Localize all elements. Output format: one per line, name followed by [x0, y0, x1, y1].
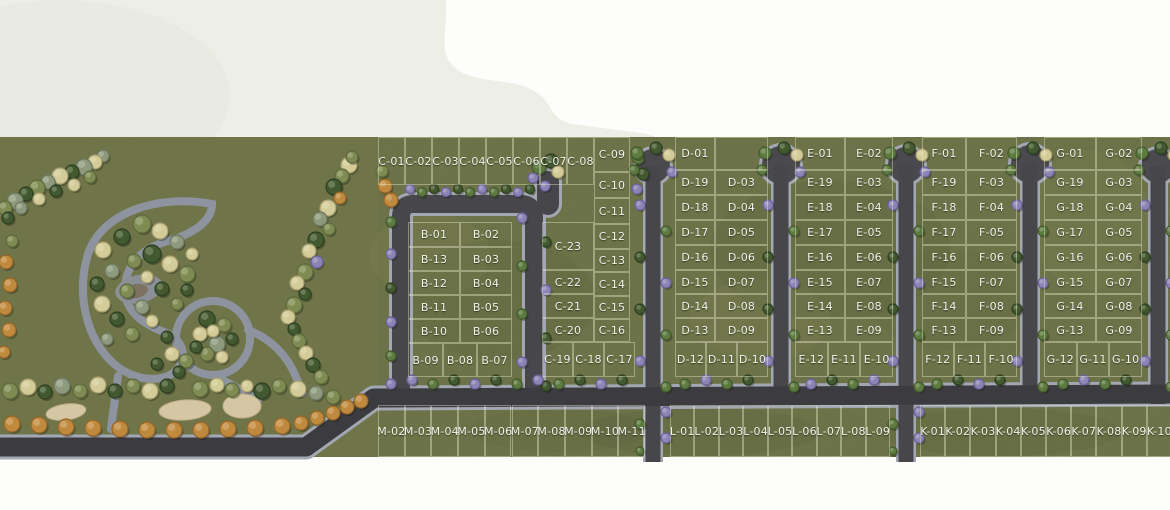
- lot-k-02[interactable]: K-02: [945, 405, 970, 457]
- lot-f-11[interactable]: F-11: [954, 342, 986, 377]
- lot-c-09[interactable]: C-09: [594, 137, 630, 172]
- lot-c-16[interactable]: C-16: [594, 319, 630, 342]
- lot-d-16[interactable]: D-16: [675, 245, 715, 270]
- lot-d-15[interactable]: D-15: [675, 270, 715, 294]
- lot-c-14[interactable]: C-14: [594, 272, 630, 296]
- lot-c-01[interactable]: C-01: [378, 137, 405, 185]
- lot-b-12[interactable]: B-12: [408, 271, 460, 295]
- lot-f-09[interactable]: F-09: [966, 318, 1017, 342]
- lot-c-11[interactable]: C-11: [594, 198, 630, 224]
- lot-g-06[interactable]: G-06: [1096, 245, 1142, 270]
- lot-m-04[interactable]: M-04: [431, 405, 458, 457]
- lot-g-10[interactable]: G-10: [1109, 342, 1142, 377]
- lot-c-04[interactable]: C-04: [459, 137, 486, 185]
- lot-g-02[interactable]: G-02: [1096, 137, 1142, 170]
- lot-l-07[interactable]: L-07: [817, 405, 841, 457]
- lot-b-03[interactable]: B-03: [460, 247, 512, 271]
- lot-c-22[interactable]: C-22: [542, 270, 594, 294]
- lot-g-04[interactable]: G-04: [1096, 195, 1142, 220]
- lot-b-07[interactable]: B-07: [477, 343, 512, 377]
- lot-e-02[interactable]: E-02: [845, 137, 893, 170]
- lot-e-06[interactable]: E-06: [845, 245, 893, 270]
- lot-d-08[interactable]: D-08: [715, 294, 768, 318]
- lot-c-05[interactable]: C-05: [486, 137, 513, 185]
- lot-m-02[interactable]: M-02: [378, 405, 405, 457]
- lot-f-08[interactable]: F-08: [966, 294, 1017, 318]
- lot-l-04[interactable]: L-04: [743, 405, 767, 457]
- lot-f-12[interactable]: F-12: [922, 342, 954, 377]
- lot-g-07[interactable]: G-07: [1096, 270, 1142, 294]
- lot-c-08[interactable]: C-08: [567, 137, 594, 185]
- lot-f-05[interactable]: F-05: [966, 220, 1017, 245]
- lot-e-07[interactable]: E-07: [845, 270, 893, 294]
- lot-d-07[interactable]: D-07: [715, 270, 768, 294]
- lot-k-08[interactable]: K-08: [1096, 405, 1121, 457]
- lot-f-02[interactable]: F-02: [966, 137, 1017, 170]
- lot-c-19[interactable]: C-19: [542, 342, 573, 377]
- lot-l-08[interactable]: L-08: [841, 405, 865, 457]
- lot-c-02[interactable]: C-02: [405, 137, 432, 185]
- lot-g-12[interactable]: G-12: [1044, 342, 1077, 377]
- lot-d-13[interactable]: D-13: [675, 318, 715, 342]
- lots-layer: C-01C-02C-03C-04C-05C-06C-07C-08C-09C-10…: [0, 0, 1170, 510]
- lot-k-06[interactable]: K-06: [1046, 405, 1071, 457]
- lot-l-01[interactable]: L-01: [670, 405, 694, 457]
- lot-k-03[interactable]: K-03: [970, 405, 995, 457]
- lot-e-14[interactable]: E-14: [795, 294, 845, 318]
- lot-c-07[interactable]: C-07: [540, 137, 567, 185]
- lot-k-01[interactable]: K-01: [920, 405, 945, 457]
- lot-c-12[interactable]: C-12: [594, 224, 630, 249]
- lot-m-10[interactable]: M-10: [592, 405, 619, 457]
- lot-e-19[interactable]: E-19: [795, 170, 845, 195]
- lot-d-05[interactable]: D-05: [715, 220, 768, 245]
- lot-e-17[interactable]: E-17: [795, 220, 845, 245]
- lot-k-05[interactable]: K-05: [1021, 405, 1046, 457]
- lot-m-06[interactable]: M-06: [485, 405, 512, 457]
- lot-b-01[interactable]: B-01: [408, 222, 460, 247]
- lot-l-05[interactable]: L-05: [768, 405, 792, 457]
- lot-d-14[interactable]: D-14: [675, 294, 715, 318]
- lot-f-17[interactable]: F-17: [922, 220, 966, 245]
- lot-f-19[interactable]: F-19: [922, 170, 966, 195]
- lot-c-03[interactable]: C-03: [432, 137, 459, 185]
- lot-d-03[interactable]: D-03: [715, 170, 768, 195]
- lot-d-09[interactable]: D-09: [715, 318, 768, 342]
- lot-g-19[interactable]: G-19: [1044, 170, 1096, 195]
- lot-k-10[interactable]: K-10: [1147, 405, 1170, 457]
- lot-b-13[interactable]: B-13: [408, 247, 460, 271]
- lot-g-01[interactable]: G-01: [1044, 137, 1096, 170]
- lot-f-07[interactable]: F-07: [966, 270, 1017, 294]
- lot-g-09[interactable]: G-09: [1096, 318, 1142, 342]
- lot-d-12[interactable]: D-12: [675, 342, 706, 377]
- lot-e-10[interactable]: E-10: [860, 342, 893, 377]
- lot-d-01[interactable]: D-01: [675, 137, 715, 170]
- lot-e-13[interactable]: E-13: [795, 318, 845, 342]
- lot-g-14[interactable]: G-14: [1044, 294, 1096, 318]
- lot-unlabeled[interactable]: [715, 137, 768, 170]
- lot-c-17[interactable]: C-17: [604, 342, 635, 377]
- lot-e-16[interactable]: E-16: [795, 245, 845, 270]
- lot-b-08[interactable]: B-08: [443, 343, 477, 377]
- lot-m-03[interactable]: M-03: [405, 405, 432, 457]
- lot-d-06[interactable]: D-06: [715, 245, 768, 270]
- lot-d-10[interactable]: D-10: [737, 342, 768, 377]
- lot-e-08[interactable]: E-08: [845, 294, 893, 318]
- lot-d-11[interactable]: D-11: [706, 342, 737, 377]
- lot-b-09[interactable]: B-09: [408, 343, 443, 377]
- lot-b-04[interactable]: B-04: [460, 271, 512, 295]
- masterplan: C-01C-02C-03C-04C-05C-06C-07C-08C-09C-10…: [0, 0, 1170, 510]
- lot-d-19[interactable]: D-19: [675, 170, 715, 195]
- lot-g-13[interactable]: G-13: [1044, 318, 1096, 342]
- lot-c-21[interactable]: C-21: [542, 294, 594, 318]
- lot-f-15[interactable]: F-15: [922, 270, 966, 294]
- lot-c-18[interactable]: C-18: [573, 342, 604, 377]
- lot-e-05[interactable]: E-05: [845, 220, 893, 245]
- lot-g-18[interactable]: G-18: [1044, 195, 1096, 220]
- lot-c-23[interactable]: C-23: [542, 222, 594, 270]
- lot-e-11[interactable]: E-11: [828, 342, 861, 377]
- lot-d-04[interactable]: D-04: [715, 195, 768, 220]
- lot-g-17[interactable]: G-17: [1044, 220, 1096, 245]
- lot-l-02[interactable]: L-02: [694, 405, 718, 457]
- lot-l-09[interactable]: L-09: [866, 405, 890, 457]
- lot-m-08[interactable]: M-08: [538, 405, 565, 457]
- lot-m-07[interactable]: M-07: [512, 405, 539, 457]
- lot-e-09[interactable]: E-09: [845, 318, 893, 342]
- lot-f-06[interactable]: F-06: [966, 245, 1017, 270]
- lot-b-05[interactable]: B-05: [460, 295, 512, 319]
- lot-f-01[interactable]: F-01: [922, 137, 966, 170]
- lot-e-03[interactable]: E-03: [845, 170, 893, 195]
- lot-c-06[interactable]: C-06: [513, 137, 540, 185]
- lot-c-10[interactable]: C-10: [594, 172, 630, 198]
- lot-g-03[interactable]: G-03: [1096, 170, 1142, 195]
- lot-b-11[interactable]: B-11: [408, 295, 460, 319]
- lot-f-10[interactable]: F-10: [985, 342, 1017, 377]
- lot-m-11[interactable]: M-11: [618, 405, 645, 457]
- lot-f-16[interactable]: F-16: [922, 245, 966, 270]
- lot-g-16[interactable]: G-16: [1044, 245, 1096, 270]
- lot-f-13[interactable]: F-13: [922, 318, 966, 342]
- lot-f-14[interactable]: F-14: [922, 294, 966, 318]
- lot-c-20[interactable]: C-20: [542, 318, 594, 342]
- lot-l-06[interactable]: L-06: [792, 405, 816, 457]
- lot-b-10[interactable]: B-10: [408, 319, 460, 343]
- lot-f-18[interactable]: F-18: [922, 195, 966, 220]
- lot-k-07[interactable]: K-07: [1071, 405, 1096, 457]
- lot-e-18[interactable]: E-18: [795, 195, 845, 220]
- lot-e-01[interactable]: E-01: [795, 137, 845, 170]
- lot-e-12[interactable]: E-12: [795, 342, 828, 377]
- lot-d-17[interactable]: D-17: [675, 220, 715, 245]
- lot-c-15[interactable]: C-15: [594, 296, 630, 319]
- lot-d-18[interactable]: D-18: [675, 195, 715, 220]
- lot-g-15[interactable]: G-15: [1044, 270, 1096, 294]
- lot-f-03[interactable]: F-03: [966, 170, 1017, 195]
- lot-b-06[interactable]: B-06: [460, 319, 512, 343]
- lot-g-05[interactable]: G-05: [1096, 220, 1142, 245]
- lot-f-04[interactable]: F-04: [966, 195, 1017, 220]
- lot-k-09[interactable]: K-09: [1122, 405, 1147, 457]
- lot-c-13[interactable]: C-13: [594, 249, 630, 272]
- lot-l-03[interactable]: L-03: [719, 405, 743, 457]
- lot-m-05[interactable]: M-05: [458, 405, 485, 457]
- lot-g-08[interactable]: G-08: [1096, 294, 1142, 318]
- lot-b-02[interactable]: B-02: [460, 222, 512, 247]
- lot-g-11[interactable]: G-11: [1077, 342, 1110, 377]
- lot-e-15[interactable]: E-15: [795, 270, 845, 294]
- lot-e-04[interactable]: E-04: [845, 195, 893, 220]
- lot-m-09[interactable]: M-09: [565, 405, 592, 457]
- lot-k-04[interactable]: K-04: [996, 405, 1021, 457]
